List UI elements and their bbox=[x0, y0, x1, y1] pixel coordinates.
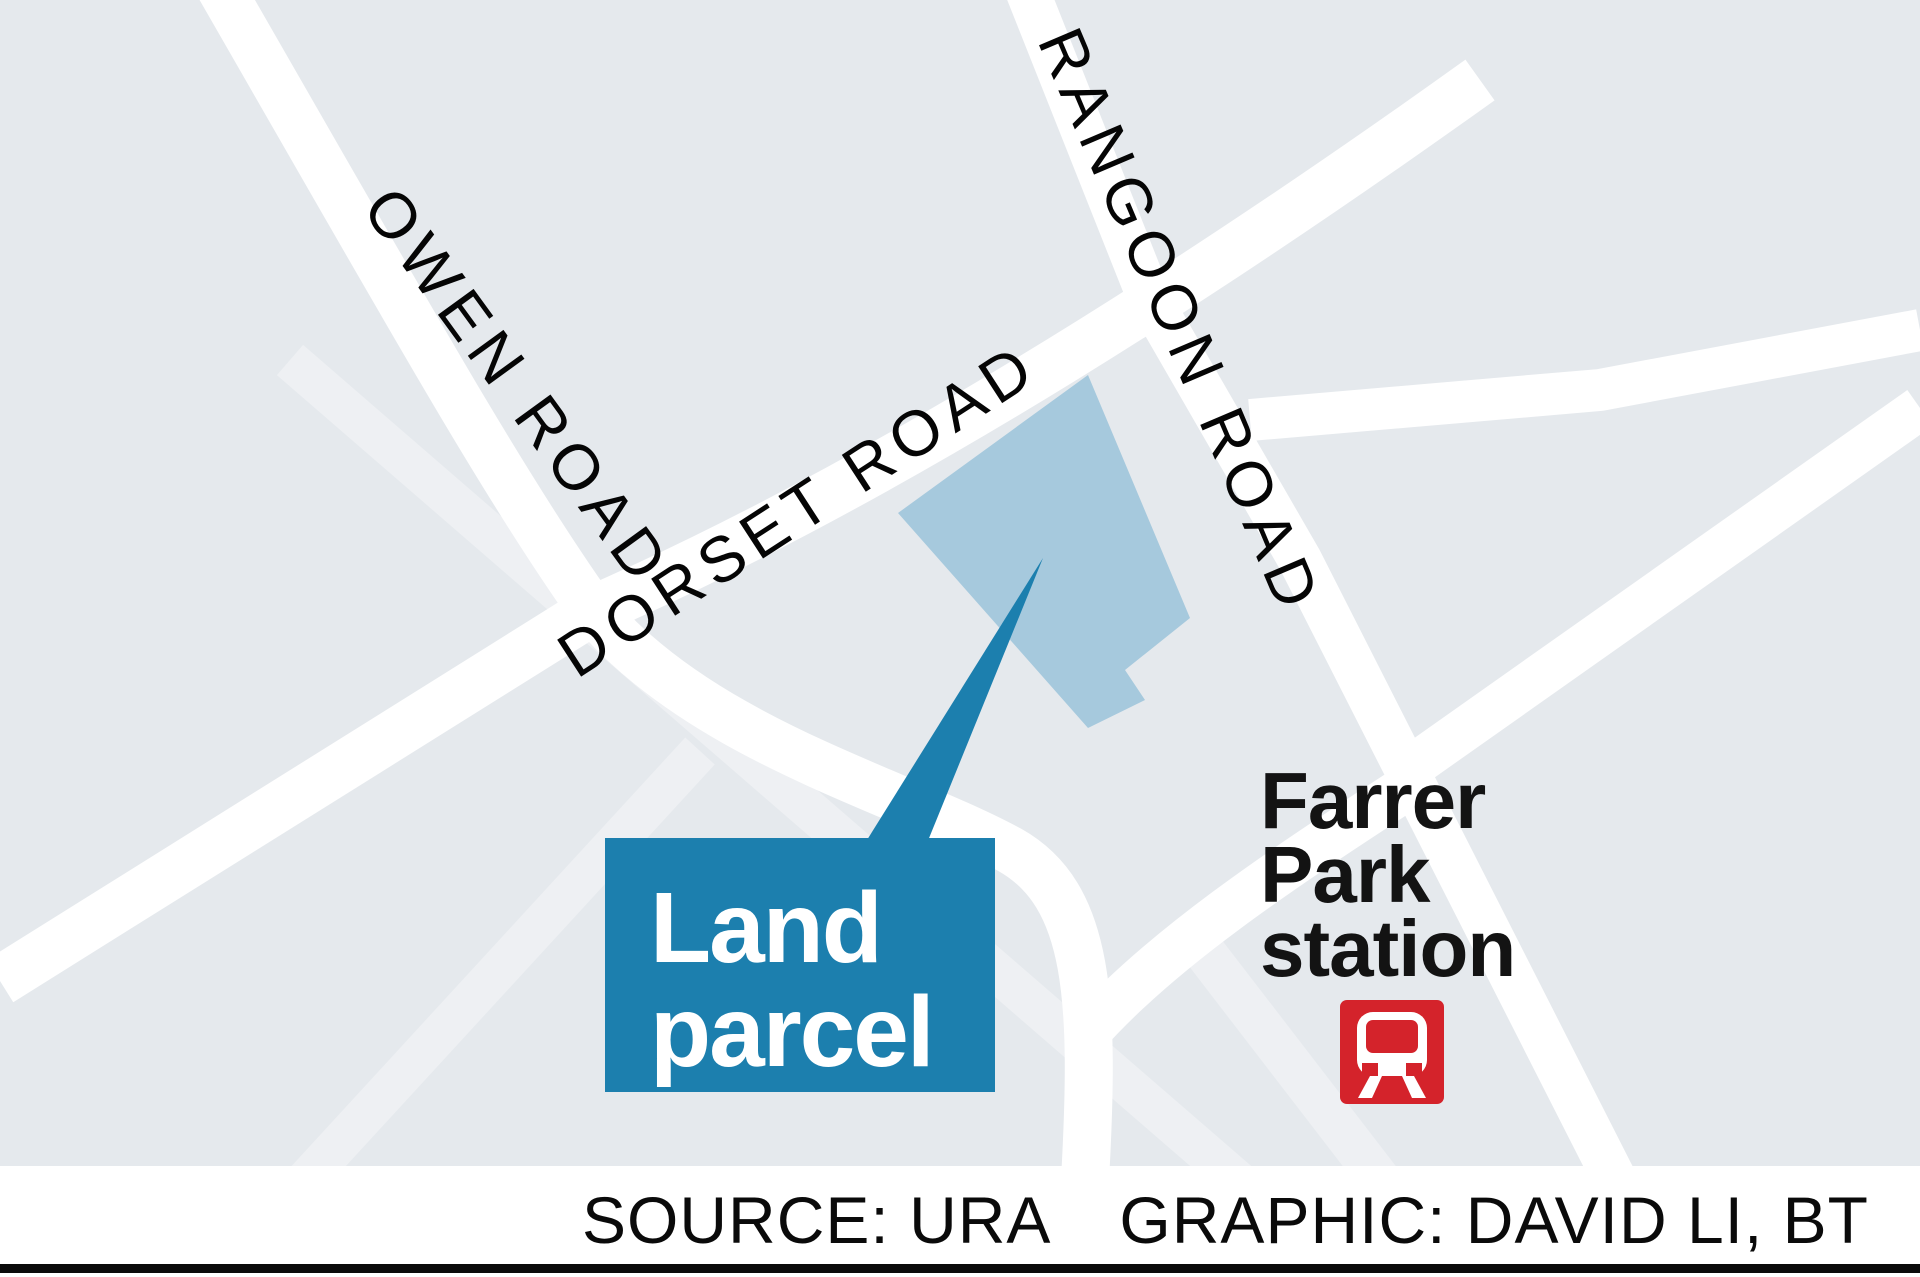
bottom-rule bbox=[0, 1264, 1920, 1273]
train-windshield bbox=[1366, 1020, 1418, 1053]
news-map-graphic: Land parcel OWEN ROAD DORSET ROAD RANGOO… bbox=[0, 0, 1920, 1277]
train-window-left bbox=[1362, 1063, 1378, 1077]
station-label-line-3: station bbox=[1260, 904, 1515, 993]
source-credit-line: SOURCE: URAGRAPHIC: DAVID LI, BT bbox=[582, 1182, 1869, 1258]
footer: SOURCE: URAGRAPHIC: DAVID LI, BT bbox=[0, 1166, 1920, 1277]
mrt-train-icon bbox=[1340, 1000, 1444, 1104]
source-text: SOURCE: URA bbox=[582, 1183, 1051, 1257]
train-window-right bbox=[1406, 1063, 1422, 1077]
map-canvas: Land parcel OWEN ROAD DORSET ROAD RANGOO… bbox=[0, 0, 1920, 1166]
callout-line-2: parcel bbox=[650, 976, 933, 1088]
credit-text: GRAPHIC: DAVID LI, BT bbox=[1119, 1183, 1869, 1257]
callout-line-1: Land bbox=[650, 872, 881, 984]
